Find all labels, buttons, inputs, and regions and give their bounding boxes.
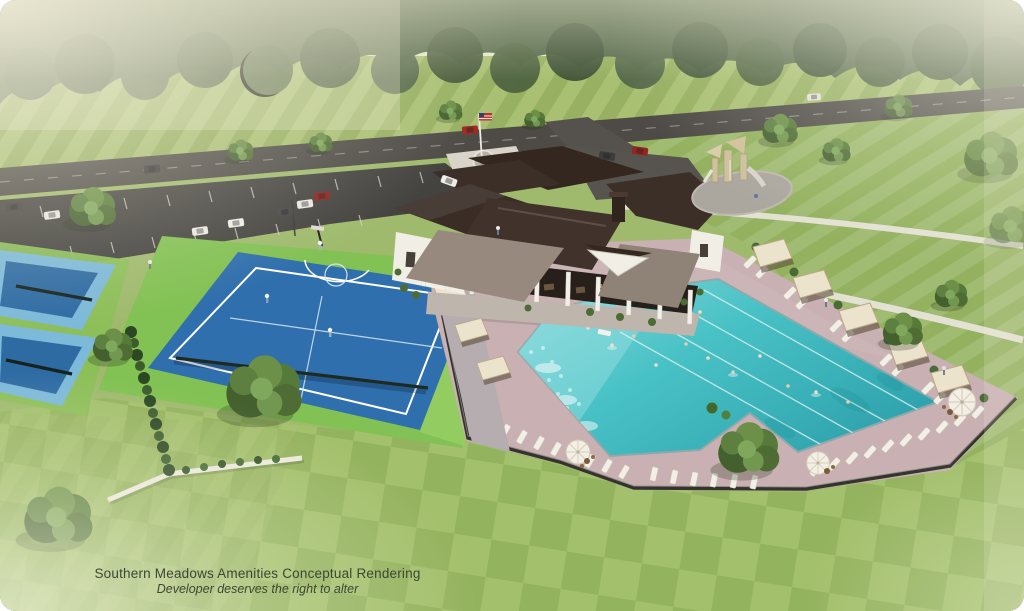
person-figure xyxy=(824,298,828,302)
deck-shrub xyxy=(707,403,718,414)
person-figure xyxy=(942,366,946,370)
rendering-canvas xyxy=(0,0,1024,611)
caption-line-1: Southern Meadows Amenities Conceptual Re… xyxy=(55,566,460,581)
caption-line-2: Developer deserves the right to alter xyxy=(55,582,460,596)
aerial-rendering: Southern Meadows Amenities Conceptual Re… xyxy=(0,0,1024,611)
caption: Southern Meadows Amenities Conceptual Re… xyxy=(55,566,460,596)
deck-shrub xyxy=(722,411,731,420)
